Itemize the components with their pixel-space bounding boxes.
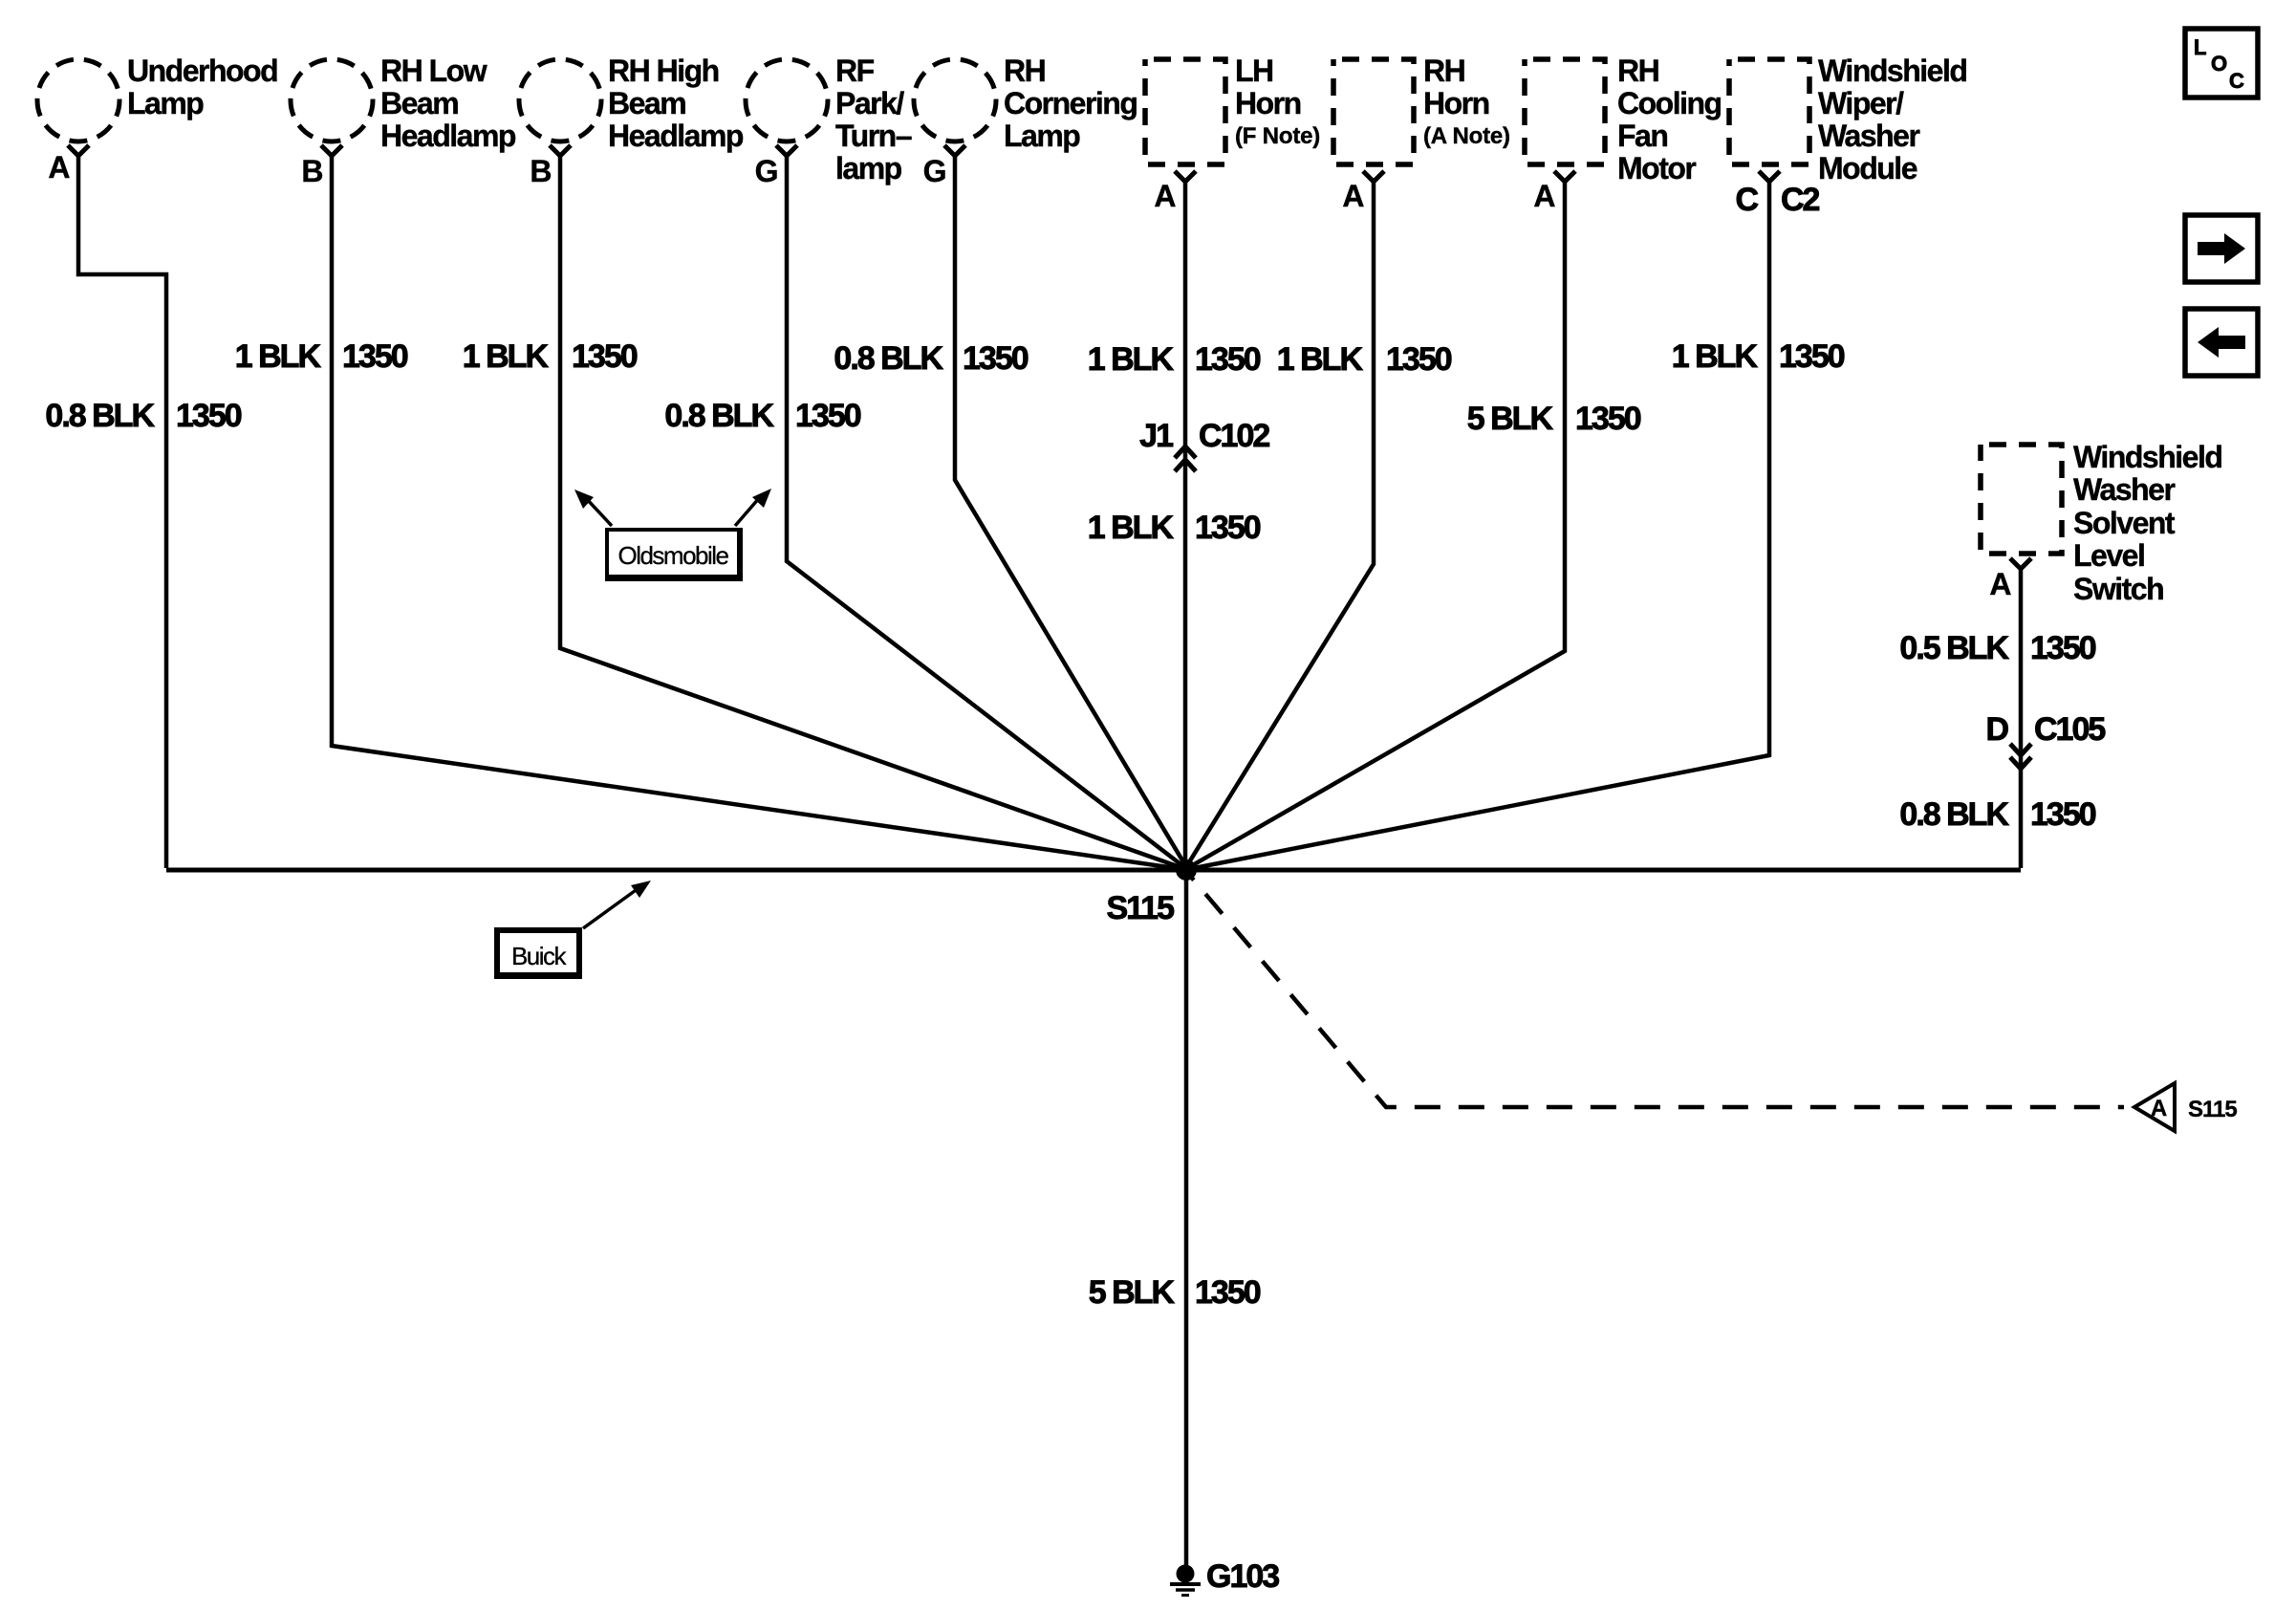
svg-text:Turn–: Turn– xyxy=(835,119,912,153)
svg-text:1 BLK: 1 BLK xyxy=(1088,510,1175,546)
svg-text:1350: 1350 xyxy=(572,338,638,375)
svg-text:1350: 1350 xyxy=(1386,341,1452,378)
svg-text:1350: 1350 xyxy=(1195,510,1261,546)
svg-text:Beam: Beam xyxy=(380,86,458,120)
svg-text:Park/: Park/ xyxy=(835,86,904,120)
svg-text:A: A xyxy=(1533,179,1555,213)
svg-text:G103: G103 xyxy=(1206,1558,1279,1595)
svg-text:1350: 1350 xyxy=(795,398,861,434)
svg-text:5 BLK: 5 BLK xyxy=(1089,1274,1176,1311)
svg-text:RH Low: RH Low xyxy=(380,54,487,88)
svg-text:(F Note): (F Note) xyxy=(1235,123,1320,149)
svg-text:1350: 1350 xyxy=(342,338,408,375)
svg-text:lamp: lamp xyxy=(835,151,902,185)
svg-text:Fan: Fan xyxy=(1617,119,1667,153)
svg-text:RH: RH xyxy=(1617,54,1658,88)
svg-text:RH: RH xyxy=(1004,54,1045,88)
svg-text:B: B xyxy=(301,154,322,188)
svg-text:1350: 1350 xyxy=(1779,338,1845,375)
svg-text:1350: 1350 xyxy=(1195,341,1261,378)
svg-text:Cooling: Cooling xyxy=(1617,86,1722,120)
svg-text:0.8 BLK: 0.8 BLK xyxy=(45,398,155,434)
svg-text:Underhood: Underhood xyxy=(127,54,277,88)
svg-text:RH: RH xyxy=(1423,54,1464,88)
svg-text:Windshield: Windshield xyxy=(2073,440,2221,474)
svg-text:Level: Level xyxy=(2073,538,2144,573)
svg-text:RF: RF xyxy=(835,54,875,88)
svg-text:A: A xyxy=(1154,179,1176,213)
svg-text:0.8 BLK: 0.8 BLK xyxy=(664,398,774,434)
svg-text:Horn: Horn xyxy=(1423,86,1489,120)
svg-text:O: O xyxy=(2211,52,2227,76)
svg-text:Lamp: Lamp xyxy=(127,86,204,120)
svg-text:J1: J1 xyxy=(1139,418,1173,454)
svg-text:Solvent: Solvent xyxy=(2073,506,2176,540)
svg-text:Headlamp: Headlamp xyxy=(380,119,516,153)
svg-text:Cornering: Cornering xyxy=(1004,86,1137,120)
svg-text:Beam: Beam xyxy=(608,86,685,120)
svg-text:1 BLK: 1 BLK xyxy=(1088,341,1175,378)
svg-text:Switch: Switch xyxy=(2073,572,2163,606)
svg-text:S115: S115 xyxy=(1106,890,1174,926)
svg-text:Motor: Motor xyxy=(1617,151,1696,185)
svg-text:Wiper/: Wiper/ xyxy=(1818,86,1904,120)
svg-text:C105: C105 xyxy=(2034,711,2105,748)
svg-text:A: A xyxy=(1342,179,1364,213)
svg-text:A: A xyxy=(1989,567,2011,601)
svg-text:L: L xyxy=(2194,35,2206,59)
svg-text:C2: C2 xyxy=(1781,182,1820,218)
svg-text:Washer: Washer xyxy=(2073,472,2175,507)
svg-text:C: C xyxy=(2229,69,2244,93)
svg-text:C102: C102 xyxy=(1199,418,1269,454)
svg-text:RH High: RH High xyxy=(608,54,719,88)
svg-text:0.8 BLK: 0.8 BLK xyxy=(1899,796,2009,833)
svg-text:Headlamp: Headlamp xyxy=(608,119,744,153)
svg-text:G: G xyxy=(923,154,945,188)
svg-text:1 BLK: 1 BLK xyxy=(1277,341,1364,378)
svg-text:1 BLK: 1 BLK xyxy=(235,338,322,375)
svg-text:1350: 1350 xyxy=(2030,630,2096,666)
svg-text:LH: LH xyxy=(1235,54,1273,88)
svg-text:Washer: Washer xyxy=(1818,119,1919,153)
svg-text:(A Note): (A Note) xyxy=(1423,123,1510,149)
svg-text:S115: S115 xyxy=(2188,1097,2237,1122)
svg-text:Module: Module xyxy=(1818,151,1917,185)
svg-text:0.8 BLK: 0.8 BLK xyxy=(834,340,943,377)
svg-text:5 BLK: 5 BLK xyxy=(1467,401,1554,437)
svg-text:D: D xyxy=(1985,711,2008,748)
svg-text:1350: 1350 xyxy=(2030,796,2096,833)
svg-text:B: B xyxy=(530,154,551,188)
svg-text:A: A xyxy=(48,150,70,185)
svg-text:C: C xyxy=(1735,182,1758,218)
svg-text:Buick: Buick xyxy=(511,942,568,970)
svg-text:Horn: Horn xyxy=(1235,86,1301,120)
svg-text:1350: 1350 xyxy=(963,340,1029,377)
svg-text:1 BLK: 1 BLK xyxy=(463,338,550,375)
svg-text:1350: 1350 xyxy=(1575,401,1641,437)
svg-text:1 BLK: 1 BLK xyxy=(1672,338,1759,375)
svg-text:Windshield: Windshield xyxy=(1818,54,1966,88)
svg-text:0.5 BLK: 0.5 BLK xyxy=(1899,630,2009,666)
svg-text:1350: 1350 xyxy=(1195,1274,1261,1311)
svg-text:1350: 1350 xyxy=(176,398,242,434)
svg-text:Lamp: Lamp xyxy=(1004,119,1080,153)
svg-text:A: A xyxy=(2151,1096,2167,1121)
svg-text:Oldsmobile: Oldsmobile xyxy=(617,541,728,570)
svg-text:G: G xyxy=(755,154,777,188)
